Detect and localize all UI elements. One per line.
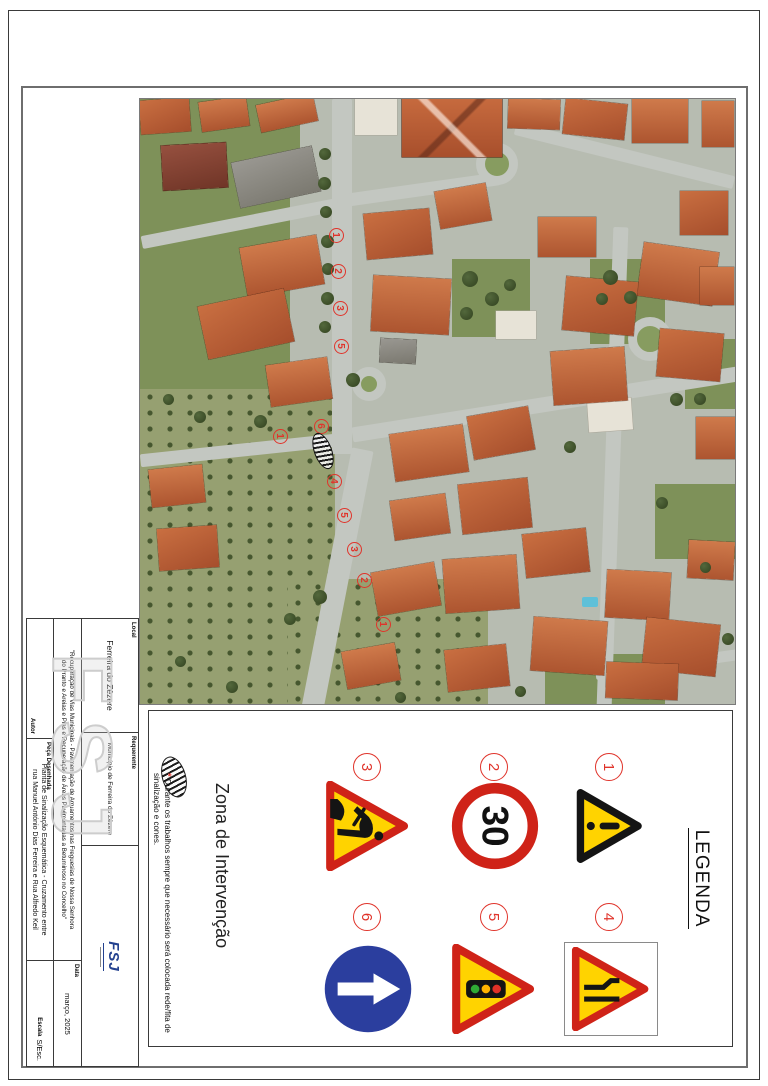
map-sign-marker-3: 3 [334,301,349,316]
legend-number-1: 1 [595,753,623,781]
drawing-sheet: 12356145321 LEGENDA Zona de Intervenção … [21,86,748,1068]
legend-number-5: 5 [480,903,508,931]
map-sign-marker-2: 2 [358,573,373,588]
fsj-logo-bar2 [100,947,101,967]
data-value: março, 2025 [54,961,81,1067]
fsj-logo: FSJ [82,846,138,1067]
sign-works-icon [326,781,410,871]
legend-panel: LEGENDA Zona de Intervenção * Durante os… [148,710,733,1047]
title-block: Local Ferreira do Zêzere Requerente Muni… [26,618,139,1067]
map-panel: 12356145321 [139,98,736,705]
titleblock-cell-peca: Peça Desenhada Planta de Sinalização Esq… [26,739,53,961]
map-sign-marker-2: 2 [332,264,347,279]
sign-ahead-icon [322,943,414,1035]
note-asterisk: * [162,773,173,777]
legend-number-2: 2 [480,753,508,781]
titleblock-cell-local: Local Ferreira do Zêzere [81,619,138,733]
legend-number-4: 4 [595,903,623,931]
drawing-page: { "title_block": { "local_label": "Local… [0,0,768,1086]
sign-narrow-icon [564,942,658,1036]
legend-number-3: 3 [353,753,381,781]
map-sign-marker-5: 5 [338,508,353,523]
map-sign-marker-1: 1 [377,617,392,632]
project-description: "Recuperação de Vias Municipais - Pavime… [54,619,81,960]
map-sign-marker-1: 1 [330,228,345,243]
legend-number-6: 6 [353,903,381,931]
svg-text:30: 30 [474,805,515,846]
titleblock-cell-description: "Recuperação de Vias Municipais - Pavime… [53,619,81,961]
fsj-logo-bar [103,943,105,971]
map-sign-marker-1: 1 [274,429,289,444]
map-sign-marker-6: 6 [315,419,330,434]
titleblock-cell-autor: Autor [26,619,53,739]
map-overlay: 12356145321 [140,99,735,704]
sign-speed-icon: 30 [451,782,539,870]
intervention-zone-hatch [308,430,338,472]
sign-lights-icon [452,944,536,1034]
requerente-value: Município de Ferreira do Zêzere [82,733,138,845]
legend-note: * Durante os trabalhos sempre que necess… [151,773,172,1069]
local-value: Ferreira do Zêzere [82,619,138,732]
escala-label: Escala [37,1017,43,1036]
note-line2: sinalização e cones. [153,773,162,845]
legend-title: LEGENDA [690,711,712,1046]
map-sign-marker-4: 4 [328,474,343,489]
titleblock-cell-escala: Escala S/Esc. [26,961,53,1067]
map-sign-marker-5: 5 [335,339,350,354]
titleblock-cell-requerente: Requerente Município de Ferreira do Zêze… [81,733,138,846]
note-line1: Durante os trabalhos sempre que necessár… [163,779,172,1033]
sign-danger-icon [576,789,644,863]
autor-label: Autor [29,718,35,734]
fsj-logo-text: FSJ [106,941,120,972]
map-sign-marker-3: 3 [348,542,363,557]
escala-value: S/Esc. [35,1039,44,1061]
intervention-zone-label: Zona de Intervenção [211,783,232,948]
titleblock-cell-data: Data março, 2025 [53,961,81,1067]
peca-value: Planta de Sinalização Esquemática - Cruz… [26,739,53,960]
titleblock-cell-logo: FSJ [81,846,138,1067]
